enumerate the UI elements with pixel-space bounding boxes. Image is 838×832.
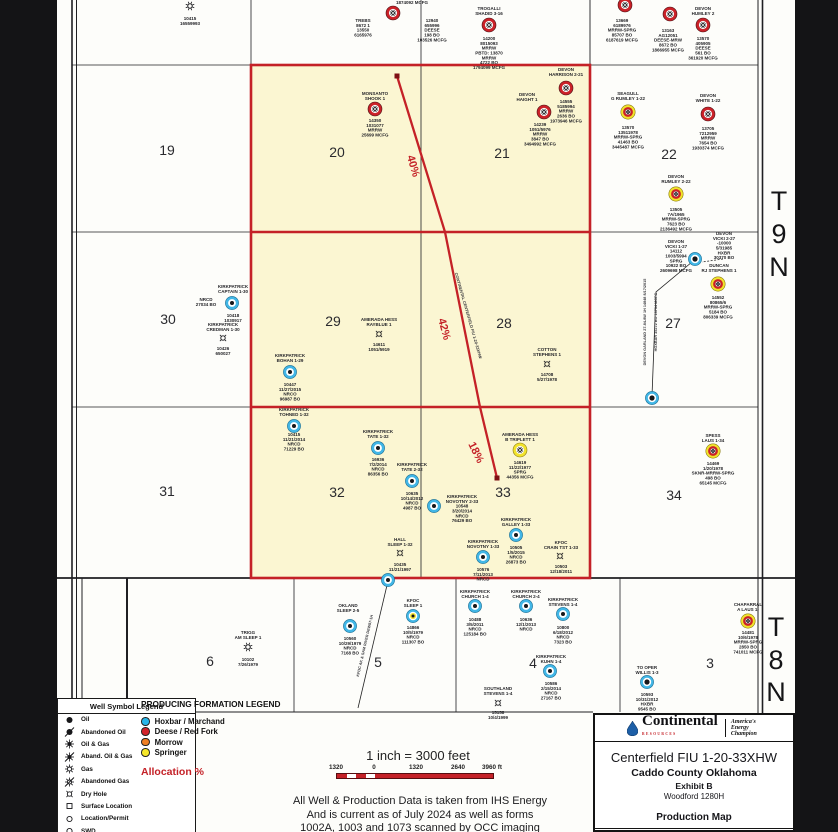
section-number: 21: [494, 145, 510, 161]
well-marker: [509, 528, 522, 541]
well-legend-row: SWD: [58, 825, 195, 832]
formation-legend-row: Springer: [141, 748, 319, 757]
well-marker: [371, 441, 384, 454]
est-depth-label: Est TMD: 29,045' Est LL: 12,900': [595, 828, 793, 832]
well-marker: [519, 599, 532, 612]
well-marker: [711, 277, 725, 291]
well-label: TO OPERWILLIS 1-3: [635, 665, 658, 675]
township-label: 9: [771, 219, 786, 249]
well-label: KIRKPATRICKSTEVENS 1-4: [548, 597, 579, 607]
well-label: KIRKPATRICKBOHAN 1-29: [275, 353, 306, 363]
well-marker: [513, 443, 527, 457]
well-marker: [669, 187, 683, 201]
well-legend-row: Location/Permit: [58, 813, 195, 825]
well-label: OKLANDSLEEP 2-5: [337, 603, 360, 613]
well-marker: [476, 550, 489, 563]
section-number: 6: [206, 653, 214, 669]
well-marker: [696, 18, 710, 32]
formation-legend-title: PRODUCING FORMATION LEGEND: [141, 699, 319, 709]
well-marker: [701, 107, 715, 121]
well-legend-label: Aband. Oil & Gas: [81, 753, 132, 760]
map-type-label: Production Map: [595, 812, 793, 823]
well-label: 1486610/5/1979NRCD111307 BO: [402, 625, 425, 644]
well-marker: [688, 252, 701, 265]
county-label: Caddo County Oklahoma: [595, 767, 793, 779]
swd-symbol-icon: [63, 825, 76, 832]
dry-symbol-icon: [63, 788, 76, 800]
ab-oil-symbol-icon: [63, 726, 76, 738]
well-label: TROGALLISHADID 3-16: [475, 6, 503, 16]
section-number: 33: [495, 484, 511, 500]
logo-divider: [725, 719, 726, 737]
section-number: 34: [666, 487, 682, 503]
allocation-label: Allocation %: [141, 766, 319, 778]
well-marker: [427, 499, 440, 512]
well-label: 104883/5/2011NRCD125184 BO: [463, 617, 487, 636]
well-label: CHAPARRALA LAUS 1-: [734, 602, 762, 612]
township-label: 8: [768, 645, 783, 675]
well-label: 135057A/1965MRRW-SPRG7623 BO2136492 MCFG: [660, 207, 693, 231]
well-label: 137057212959MRRW7654 BO1930374 MCFG: [692, 126, 725, 150]
loc-symbol-icon: [63, 813, 76, 825]
well-label: MONSANTOSHOOK 1: [362, 91, 389, 101]
formation-legend-label: Hoxbar / Marchand: [155, 717, 225, 726]
well-label: KIRKPATRICKTOHNED 1-32: [279, 407, 310, 417]
oil-symbol-icon: [63, 714, 76, 726]
well-label: 1059310/31/2012HXBR9545 BO: [636, 692, 659, 711]
section-number: 30: [160, 311, 176, 327]
well-label: KIRKPATRICKCAPTAIN 1-30: [218, 284, 249, 294]
well-label: 1041516559993: [180, 16, 201, 26]
scale-bar-segment: [347, 774, 357, 778]
well-legend-label: Abandoned Gas: [81, 778, 129, 785]
well-label: 1063612/1/2013NRCD: [516, 617, 537, 632]
well-marker: [741, 614, 755, 628]
section-number: 32: [329, 484, 345, 500]
well-marker: [220, 335, 226, 341]
data-disclaimer: All Well & Production Data is taken from…: [245, 795, 595, 832]
well-marker: [343, 619, 356, 632]
formation-legend-label: Springer: [155, 748, 187, 757]
well-marker: [287, 419, 300, 432]
well-label: 136696189976MRRW-SPRG85707 BO6187619 MCF…: [606, 18, 639, 42]
well-label: DEVONVICKI 2-27-100005/31985HXBR30370 BO: [713, 231, 736, 260]
section-number: 31: [159, 483, 175, 499]
scale-bar-segment: [375, 774, 493, 778]
ab-gas-symbol-icon: [63, 776, 76, 788]
well-label: DUNCANRJ STEPHENS 1: [701, 263, 737, 273]
scale-bar: [336, 773, 494, 779]
brand-name: Continental RESOURCES: [642, 715, 718, 741]
well-label: KIRKPATRICKNOVOTNY 1-33: [467, 539, 500, 549]
well-legend-label: Abandoned Oil: [81, 729, 126, 736]
scale-text: 1 inch = 3000 feet: [328, 748, 508, 763]
scale-tick: 0: [372, 764, 376, 771]
well-marker: [663, 7, 677, 21]
well-marker: [618, 0, 632, 12]
well-label: 10426650027: [215, 346, 231, 356]
formation-color-icon: [141, 738, 150, 747]
well-label: 144691/20/1978SKNR-MRRW-SPRG498 BO65145 …: [692, 461, 735, 485]
surf-symbol-icon: [63, 800, 76, 812]
formation-label: Woodford 1280H: [595, 792, 793, 801]
well-legend-label: Oil & Gas: [81, 741, 109, 748]
well-label: 142008015093MRRWPBTD: 13870MRRW4722 BO17…: [473, 36, 506, 70]
well-label: 1357013511978MRRW-SPRG41463 BO3445487 MC…: [612, 125, 645, 149]
well-label: DEVONHUMLEY 2: [692, 6, 715, 16]
well-label: KIRKPATRICKCHURCH 1-4: [460, 589, 491, 599]
well-label: KIRKPATRICKGALLEY 1-33: [501, 517, 532, 527]
well-label: KIRKPATRICKCREDMAN 1-30: [206, 322, 240, 332]
township-label: N: [769, 252, 789, 282]
scale-tick: 1320: [329, 764, 343, 771]
well-label: DEVONRUMLEY 2-22: [661, 174, 691, 184]
disclaimer-line: All Well & Production Data is taken from…: [245, 795, 595, 809]
well-marker: [621, 105, 635, 119]
well-label: 105862/15/2014NRCD27167 BO: [541, 681, 562, 700]
well-label: 1448110/6/1978MRRW-SPRG2850 BO741011 MCF…: [733, 630, 763, 654]
exhibit-label: Exhibit B: [595, 781, 793, 791]
section-number: 5: [374, 654, 382, 670]
township-label: N: [766, 677, 786, 707]
ab-oilgas-symbol-icon: [63, 751, 76, 763]
section-number: 20: [329, 144, 345, 160]
well-legend-label: Oil: [81, 716, 89, 723]
well-marker: [640, 675, 653, 688]
well-label: 13570405905DEESE561 BO361920 MCFG: [688, 36, 718, 60]
well-label: 1056010/29/1979NRCD7168 BO: [339, 636, 362, 655]
well-marker: [244, 643, 252, 651]
well-legend-label: Surface Location: [81, 803, 132, 810]
lateral-endpoint: [495, 476, 500, 481]
well-label: HOXBAR 35272 BO 13734 MCFG: [654, 293, 658, 352]
well-marker: [706, 444, 720, 458]
section-number: 27: [665, 315, 681, 331]
well-label: DEVON GARLAND 27-84-8W 1H 14848 8/17/201…: [643, 279, 647, 366]
brand-text: Continental: [642, 713, 718, 729]
formation-color-icon: [141, 717, 150, 726]
well-legend-row: Surface Location: [58, 800, 195, 812]
well-label: AMERADA HESSB TRIPLETT 1: [502, 432, 538, 442]
formation-color-icon: [141, 748, 150, 757]
well-marker: [482, 18, 496, 32]
well-marker: [283, 365, 296, 378]
formation-legend-label: Morrow: [155, 738, 183, 747]
unit-title: Centerfield FIU 1-20-33XHW: [595, 750, 793, 765]
well-legend-label: Dry Hole: [81, 791, 107, 798]
well-marker: [495, 700, 501, 706]
scale-bar-segment: [366, 774, 376, 778]
well-marker: [543, 664, 556, 677]
brand-tagline: America's Energy Champion: [731, 719, 757, 738]
well-marker: [468, 599, 481, 612]
well-label: 1515810/4/1999: [488, 710, 509, 720]
well-label: SEAGULLG RUMLEY 1-22: [611, 91, 645, 101]
scale-tick: 2640: [451, 764, 465, 771]
well-legend-row: Dry Hole: [58, 788, 195, 800]
scale-tick: 1320: [409, 764, 423, 771]
well-marker: [386, 6, 400, 20]
well-label: 13163AG12051DEESE-MRW8672 BO1866955 MCFG: [652, 28, 685, 52]
well-label: NRCD27034 BO: [196, 297, 217, 307]
well-marker: [225, 296, 238, 309]
water-drop-icon: [627, 721, 638, 736]
oilgas-symbol-icon: [63, 738, 76, 750]
section-number: 4: [529, 655, 537, 671]
well-label: DEVONVICKI 1-27141121003/5994SPRG10922 B…: [660, 239, 693, 273]
formation-legend-row: Morrow: [141, 738, 319, 747]
well-marker: [405, 474, 418, 487]
scale-block: 1 inch = 3000 feet 13200132026403960 ft: [328, 748, 508, 779]
well-marker: [559, 81, 573, 95]
gas-symbol-icon: [63, 763, 76, 775]
formation-color-icon: [141, 727, 150, 736]
well-label: TRIGGAM SLEEP 1: [235, 630, 262, 640]
formation-legend-label: Deese / Red Fork: [155, 727, 218, 736]
scale-bar-segment: [356, 774, 366, 778]
well-label: 12940655996DEESE198 BO103526 MCFG: [417, 18, 447, 42]
well-label: 1455280865/6MRRW-SPRG5184 BO806339 MCFG: [703, 295, 733, 319]
well-label: SOUTHLANDSTEVENS 1-4: [484, 686, 513, 696]
title-block-body: Centerfield FIU 1-20-33XHW Caddo County …: [595, 750, 793, 832]
township-label: T: [771, 186, 788, 216]
lateral-endpoint: [395, 74, 400, 79]
production-map-document: 10415165599931874092 MCFGTREBS8672 11355…: [0, 0, 838, 832]
well-marker: [537, 105, 551, 119]
well-marker: [645, 391, 658, 404]
well-label: SPESSLAUS 1-34: [702, 433, 725, 443]
well-marker: [556, 607, 569, 620]
well-label: TREBS8672 1135506165976: [354, 18, 372, 37]
well-label: 101027/26/1979: [238, 657, 259, 667]
disclaimer-line: 1002A, 1003 and 1073 scanned by OCC imag…: [245, 822, 595, 832]
section-number: 28: [496, 315, 512, 331]
well-label: DEVONWHITE 1-22: [696, 93, 721, 103]
scale-tick: 3960 ft: [482, 764, 502, 771]
well-label: KIRKPATRICKCHURCH 2-4: [511, 589, 542, 599]
scale-ticks: 13200132026403960 ft: [328, 764, 508, 772]
section-number: 29: [325, 313, 341, 329]
well-label: 1874092 MCFG: [396, 0, 429, 5]
brand-subtext: RESOURCES: [642, 728, 718, 741]
well-legend-label: Location/Permit: [81, 815, 129, 822]
title-block: Continental RESOURCES America's Energy C…: [593, 713, 795, 832]
well-marker: [186, 2, 194, 10]
well-marker: [381, 573, 394, 586]
section-number: 19: [159, 142, 175, 158]
section-number: 3: [706, 655, 714, 671]
well-label: 108006/18/2012NRCD7323 BO: [553, 625, 574, 644]
disclaimer-line: And is current as of July 2024 as well a…: [245, 809, 595, 823]
well-label: KIRKPATRICKKUHN 1-4: [536, 654, 567, 664]
well-marker: [406, 609, 419, 622]
scale-bar-segment: [337, 774, 347, 778]
township-label: T: [768, 612, 785, 642]
well-label: DEVONHAIGHT 1: [516, 92, 537, 102]
formation-legend: PRODUCING FORMATION LEGEND Hoxbar / Marc…: [141, 699, 319, 778]
formation-legend-items: Hoxbar / MarchandDeese / Red ForkMorrowS…: [141, 717, 319, 757]
well-legend-label: SWD: [81, 828, 96, 832]
well-marker: [368, 102, 382, 116]
formation-legend-row: Deese / Red Fork: [141, 727, 319, 736]
company-logo: Continental RESOURCES America's Energy C…: [595, 715, 793, 742]
well-legend-label: Gas: [81, 766, 93, 773]
section-number: 22: [661, 146, 677, 162]
formation-legend-row: Hoxbar / Marchand: [141, 717, 319, 726]
well-label: KFOCSLEEP 1: [404, 598, 423, 608]
